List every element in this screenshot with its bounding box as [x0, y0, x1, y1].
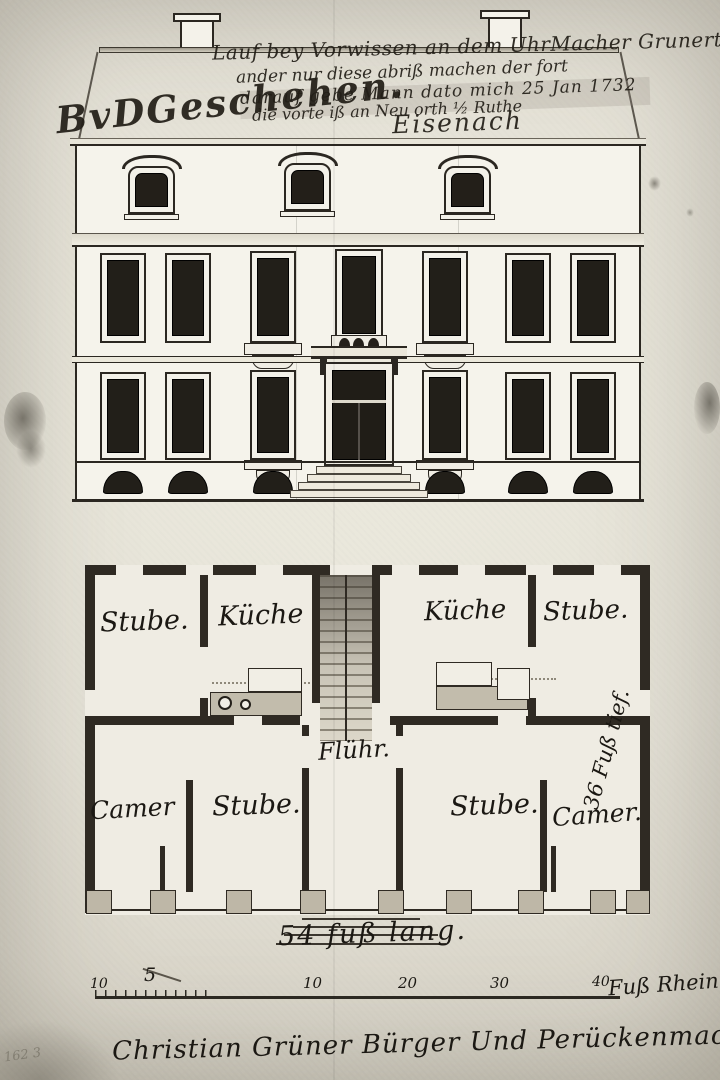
window-glass: [512, 260, 544, 336]
dormer-window: [444, 166, 491, 214]
wall-pier: [590, 890, 616, 914]
partition-wall: [200, 575, 208, 647]
room-label-kueche-right: Küche: [424, 595, 507, 628]
scale-tick-label: 30: [490, 974, 509, 992]
scale-tick-label: 10: [303, 974, 322, 992]
window-glass: [107, 379, 139, 453]
scale-line: [95, 996, 620, 999]
room-label-stube-front-right: Stube.: [449, 788, 539, 822]
door-opening: [498, 716, 526, 725]
scale-subdivision-ticks: [95, 990, 208, 996]
dormer-window: [284, 163, 331, 211]
ground-window: [570, 372, 616, 460]
staircase-stringer: [345, 575, 347, 741]
window-opening: [392, 565, 419, 575]
chimney-cap: [480, 10, 530, 19]
stove-ring: [218, 696, 232, 710]
partition-wall: [528, 575, 536, 647]
entrance-door-frame: [324, 362, 394, 466]
step: [298, 482, 420, 490]
window-glass: [291, 170, 324, 204]
stair-wall-right: [372, 575, 380, 703]
upper-window: [505, 253, 551, 343]
eave-cornice: [70, 138, 646, 146]
approval-flourish: BvDGeschehen.: [54, 62, 407, 142]
plan-wall-right: [640, 565, 650, 913]
door-opening: [396, 736, 403, 768]
length-dimension-label: 54 fuß lang.: [278, 915, 468, 953]
ink-stain: [4, 392, 46, 450]
room-label-stube-front-left: Stube.: [211, 788, 301, 822]
step: [307, 474, 411, 482]
scale-tick-label: 20: [398, 974, 417, 992]
small-spot: [648, 176, 661, 191]
hall-label: Flühr.: [317, 734, 390, 766]
ground-window: [422, 370, 468, 460]
window-glass: [172, 379, 204, 453]
ground-window: [165, 372, 211, 460]
wall-pier: [86, 890, 112, 914]
cross-wall-left: [94, 716, 300, 725]
window-glass: [342, 256, 376, 334]
wall-pier: [378, 890, 404, 914]
window-glass: [107, 260, 139, 336]
plan-wall-left: [85, 565, 95, 913]
window-glass: [172, 260, 204, 336]
upper-window: [422, 251, 468, 343]
owner-signature-line: Christian Grüner Bürger Und Perückenmach…: [112, 1019, 720, 1066]
window-opening: [526, 565, 553, 575]
room-label-kueche-left: Küche: [217, 599, 303, 633]
scale-tick-label: 10: [90, 976, 108, 992]
dormer-window: [128, 166, 175, 214]
small-spot: [686, 208, 694, 217]
wall-pier: [300, 890, 326, 914]
chimney-cap: [173, 13, 221, 22]
handwriting-signature: Eisenach: [392, 106, 524, 140]
window-opening: [256, 565, 283, 575]
scale-tick-label: 5: [144, 964, 156, 986]
ink-stain: [694, 382, 720, 434]
window-glass: [577, 379, 609, 453]
hearth-block: [497, 668, 530, 700]
window-glass: [257, 258, 289, 336]
upper-window: [100, 253, 146, 343]
door-canopy: [311, 346, 407, 359]
wall-pier: [518, 890, 544, 914]
ground-window: [250, 370, 296, 460]
door-leaf-split: [358, 403, 360, 460]
stove-ring: [240, 699, 251, 710]
door-opening: [234, 716, 262, 725]
partition-wall: [528, 698, 536, 718]
window-glass: [135, 173, 168, 207]
partition-stub: [551, 846, 556, 892]
room-label-stube-rear-left: Stube.: [99, 604, 189, 638]
window-opening: [116, 565, 143, 575]
scale-unit-label: Fuß Rheinl.: [607, 968, 720, 1001]
window-opening: [640, 690, 650, 716]
ground-window: [100, 372, 146, 460]
scanned-drawing-sheet: Lauf bey Vorwissen an dem UhrMacher Grun…: [0, 0, 720, 1080]
window-apron: [416, 343, 474, 355]
fold-crease-vertical: [333, 0, 335, 1080]
stair-wall-left: [312, 575, 320, 703]
upper-window-center: [335, 249, 383, 341]
partition-wall: [200, 698, 208, 718]
room-label-stube-rear-right: Stube.: [543, 595, 629, 628]
window-glass: [429, 377, 461, 453]
step: [290, 490, 428, 498]
window-glass: [257, 377, 289, 453]
ink-stain: [16, 430, 46, 468]
wall-pier: [626, 890, 650, 914]
window-glass: [451, 173, 484, 207]
window-opening: [594, 565, 621, 575]
upper-window: [570, 253, 616, 343]
ground-window: [505, 372, 551, 460]
wall-pier: [446, 890, 472, 914]
hearth-block: [248, 668, 302, 692]
window-opening: [85, 690, 95, 716]
cornice-band: [72, 233, 644, 247]
dormer-sill: [280, 211, 335, 217]
wall-pier: [226, 890, 252, 914]
window-apron: [244, 343, 302, 355]
partition-wall: [540, 780, 547, 892]
window-glass: [577, 260, 609, 336]
ground-line: [72, 499, 644, 502]
upper-window: [165, 253, 211, 343]
partition-wall: [186, 780, 193, 892]
room-label-camer-left: Camer: [89, 792, 175, 825]
entrance-steps: [290, 466, 430, 502]
archive-pencil-note: 162 3: [3, 1045, 42, 1065]
window-glass: [429, 258, 461, 336]
upper-window: [250, 251, 296, 343]
wall-pier: [150, 890, 176, 914]
window-opening: [186, 565, 213, 575]
basement-band-line: [75, 461, 641, 463]
step: [316, 466, 402, 474]
window-opening: [330, 565, 372, 575]
door-opening: [302, 736, 309, 768]
hearth-block: [436, 662, 492, 686]
window-glass: [512, 379, 544, 453]
partition-stub: [160, 846, 165, 892]
window-opening: [458, 565, 485, 575]
dormer-sill: [124, 214, 179, 220]
dormer-sill: [440, 214, 495, 220]
